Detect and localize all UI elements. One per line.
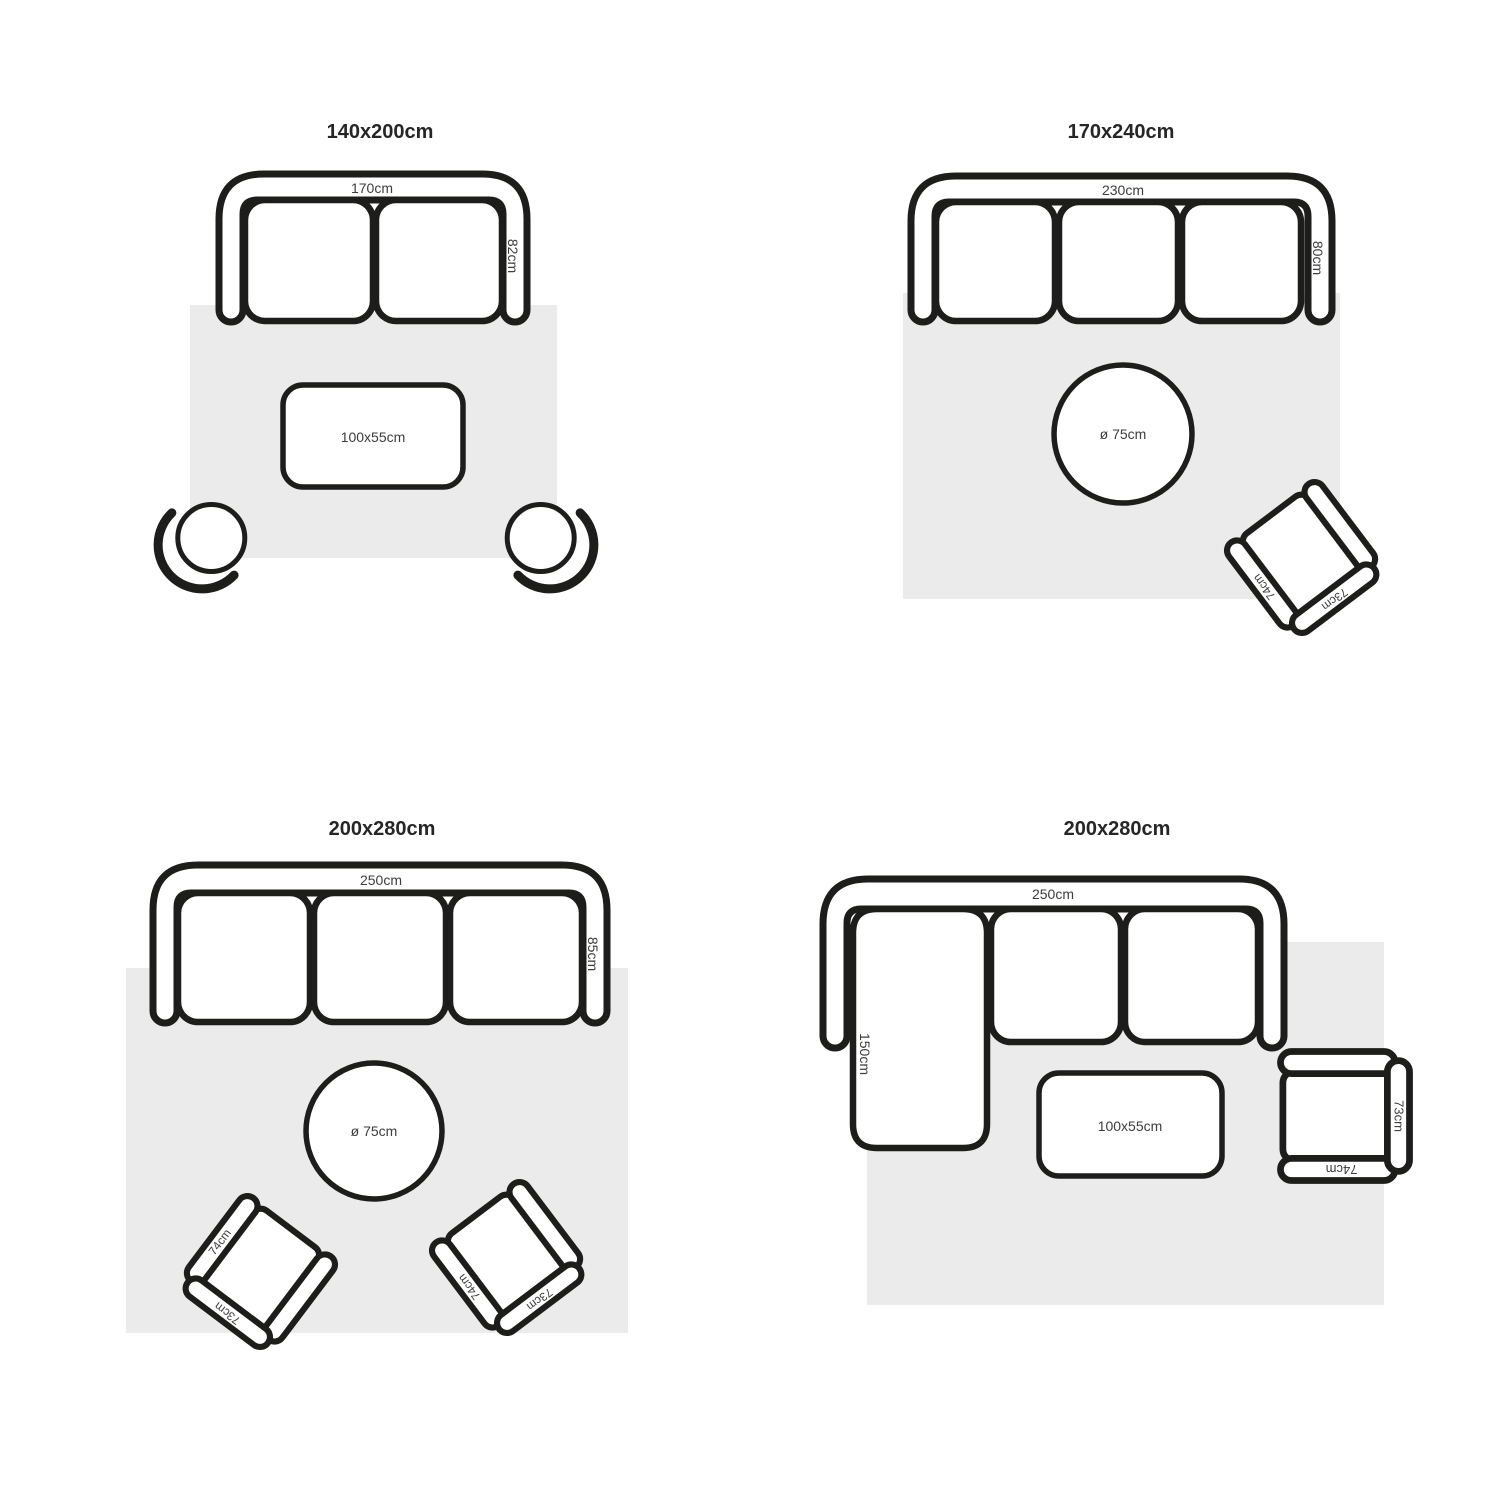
sofa-cushion [1059, 202, 1178, 321]
sofa-cushion [245, 200, 373, 321]
panel-140x200: 140x200cm 170cm 82cm 100x55cm [158, 121, 594, 589]
panel-200x280-b: 200x280cm 250cm 150cm 100x55cm 74cm 73cm [823, 818, 1410, 1305]
sofa-depth-label: 82cm [505, 239, 521, 273]
round-table-label: ø 75cm [1100, 426, 1147, 442]
sofa-depth-label: 80cm [1310, 241, 1326, 275]
armchair-arm-label: 74cm [1326, 1162, 1358, 1177]
tub-chair-seat [507, 505, 574, 572]
rug-size-guide-diagram: 140x200cm 170cm 82cm 100x55cm 170x240cm … [0, 0, 1500, 1500]
panel-200x280-a: 200x280cm 250cm 85cm ø 75cm 74cm 73cm 74… [126, 818, 628, 1356]
panel-170x240: 170x240cm 230cm 80cm ø 75cm 74cm 73cm [903, 121, 1387, 642]
round-table-label: ø 75cm [351, 1123, 398, 1139]
coffee-table-label: 100x55cm [341, 429, 406, 445]
chaise-depth-label: 150cm [857, 1033, 873, 1075]
sofa-cushion [314, 893, 446, 1022]
tub-chair [158, 505, 245, 589]
sofa-cushion [991, 909, 1121, 1042]
sofa-width-label: 230cm [1102, 182, 1144, 198]
panel-title: 170x240cm [1068, 121, 1175, 143]
sofa-width-label: 170cm [351, 180, 393, 196]
panel-title: 200x280cm [329, 818, 436, 840]
sofa-width-label: 250cm [360, 872, 402, 888]
sofa-cushion [1182, 202, 1301, 321]
chaise-lounge [853, 909, 987, 1148]
sofa-cushion [450, 893, 582, 1022]
coffee-table-label: 100x55cm [1098, 1118, 1163, 1134]
armchair: 74cm 73cm [1280, 1051, 1409, 1180]
armchair-back-label: 73cm [1391, 1100, 1406, 1132]
sofa-cushion [376, 200, 502, 321]
sofa-depth-label: 85cm [585, 937, 601, 971]
sofa-width-label: 250cm [1032, 886, 1074, 902]
tub-chair-seat [178, 505, 245, 572]
panel-title: 200x280cm [1064, 818, 1171, 840]
sofa-cushion [936, 202, 1055, 321]
panel-title: 140x200cm [327, 121, 434, 143]
tub-chair [507, 505, 594, 589]
sofa-cushion [1125, 909, 1258, 1042]
sofa-cushion [178, 893, 310, 1022]
